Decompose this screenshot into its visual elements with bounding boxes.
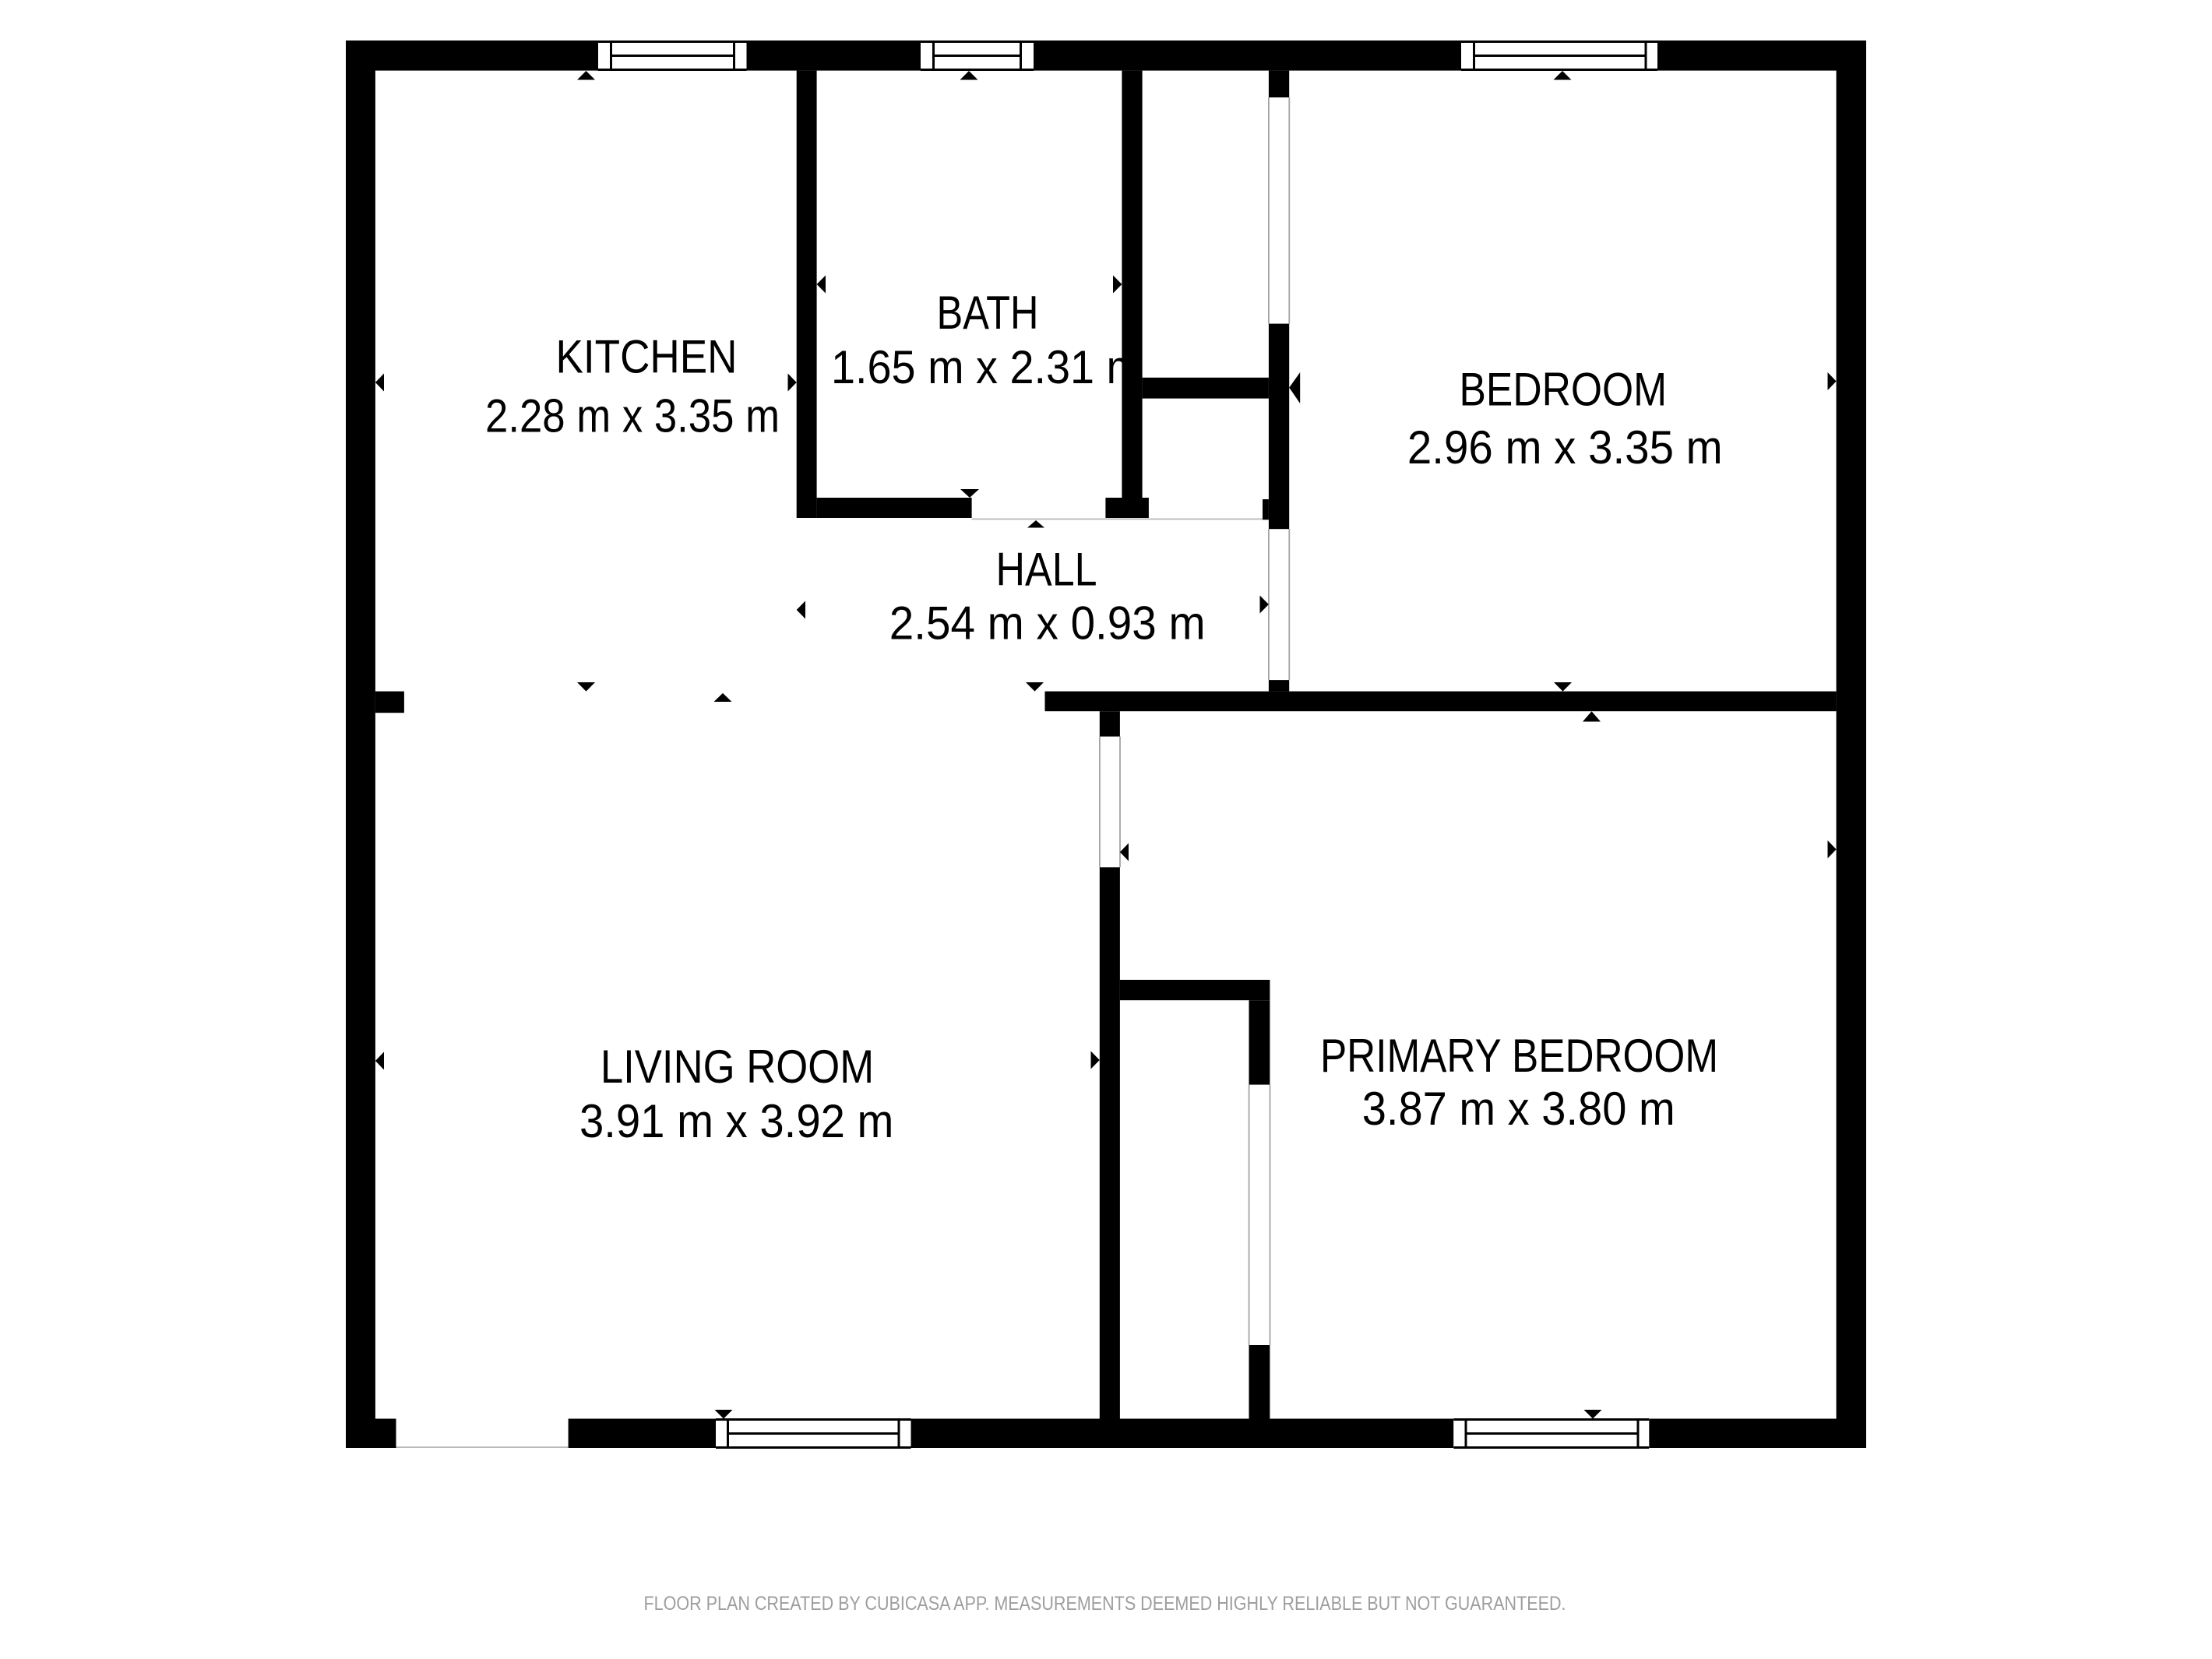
svg-text:HALL: HALL xyxy=(996,544,1097,596)
svg-text:KITCHEN: KITCHEN xyxy=(556,331,738,383)
svg-text:2.54 m x 0.93 m: 2.54 m x 0.93 m xyxy=(889,597,1206,650)
svg-text:BATH: BATH xyxy=(937,287,1039,339)
svg-text:FLOOR PLAN CREATED BY CUBICASA: FLOOR PLAN CREATED BY CUBICASA APP. MEAS… xyxy=(644,1593,1566,1615)
svg-text:BEDROOM: BEDROOM xyxy=(1460,364,1668,416)
svg-text:PRIMARY BEDROOM: PRIMARY BEDROOM xyxy=(1320,1030,1718,1082)
svg-text:1.65 m x 2.31 m: 1.65 m x 2.31 m xyxy=(831,341,1143,393)
svg-text:LIVING ROOM: LIVING ROOM xyxy=(601,1041,874,1093)
svg-text:2.96 m x 3.35 m: 2.96 m x 3.35 m xyxy=(1407,421,1723,474)
svg-text:3.87 m x 3.80 m: 3.87 m x 3.80 m xyxy=(1362,1083,1675,1135)
svg-text:3.91 m x 3.92 m: 3.91 m x 3.92 m xyxy=(579,1095,894,1147)
svg-text:2.28 m x 3.35 m: 2.28 m x 3.35 m xyxy=(485,389,780,442)
